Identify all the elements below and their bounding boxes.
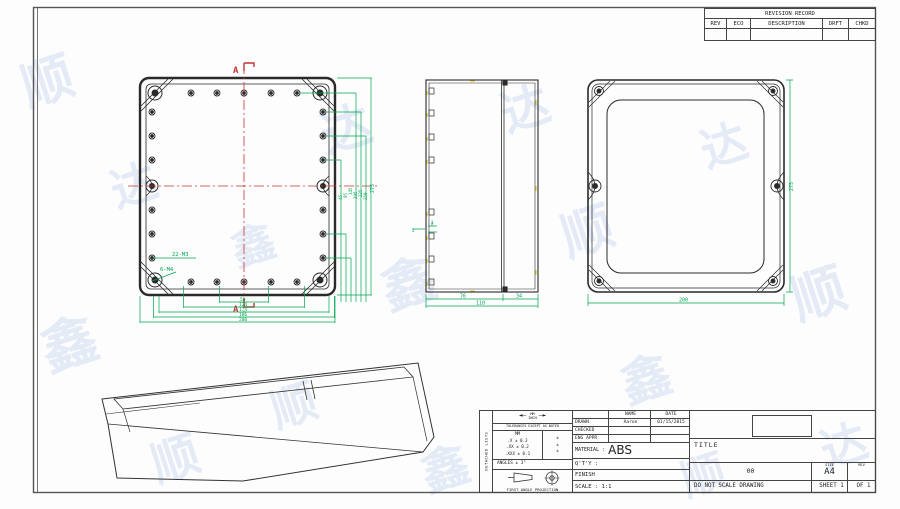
size-value: A4	[824, 468, 835, 478]
drawing-number: 00	[690, 463, 812, 480]
corner-holes-label: 6-M4	[160, 267, 174, 273]
svg-text:76: 76	[460, 294, 466, 300]
sheet-of: OF 1	[848, 481, 875, 492]
col-rev: REV	[705, 19, 727, 28]
side-strip-label: DETACHED LISTS	[484, 432, 488, 471]
col-chkd: CHKD	[849, 19, 875, 28]
back-dimensions	[588, 80, 793, 306]
col-drft: DRFT	[823, 19, 849, 28]
material-label: MATERIAL :	[575, 448, 605, 454]
cone-symbol-icon	[506, 471, 536, 484]
tol-row-2: .XX ± 0.2	[506, 445, 529, 450]
stamp-row	[690, 411, 875, 439]
front-view: A A 50 124	[128, 63, 380, 323]
tol-row-1: .X ± 0.3	[507, 439, 527, 444]
tolerance-block: ◄— MM INCH —► TOLERANCES EXCEPT AS NOTED…	[493, 411, 573, 492]
revision-table-title: REVISION RECORD	[704, 8, 876, 19]
checked-row: CHECKED	[573, 427, 689, 435]
projection-target-icon	[544, 470, 560, 486]
approvals-header: NAME DATE	[573, 411, 689, 419]
svg-text:250: 250	[363, 192, 368, 200]
approvals-block: NAME DATE DRAWN Aaron 01/15/2015 CHECKED…	[573, 411, 690, 492]
svg-text:200: 200	[239, 317, 247, 323]
rev-cell: REV	[848, 463, 875, 480]
svg-text:275: 275	[370, 184, 376, 193]
back-view: 200 275	[588, 80, 795, 306]
section-mark-top: A	[233, 66, 239, 76]
side-view: 76 34 110 3 2	[412, 80, 538, 308]
stamp-box	[752, 415, 812, 437]
back-dim-texts: 200 275	[679, 182, 795, 304]
eng-appr-row: ENG APPR	[573, 435, 689, 443]
arrow-left-icon: ◄—	[519, 413, 526, 420]
isometric-view	[102, 363, 434, 481]
tolerance-table: MM .X ± 0.3 .XX ± 0.2 .XXX ± 0.1 ± ± ±	[493, 431, 572, 460]
title-block: DETACHED LISTS ◄— MM INCH —► TOLERANCES …	[479, 410, 876, 493]
tolerance-note: TOLERANCES EXCEPT AS NOTED	[493, 424, 572, 432]
thread-holes-label: 22-M3	[172, 252, 189, 258]
number-row: 00 SIZE A4 REV	[690, 463, 875, 481]
angles-tolerance: ANGLES ± 3°	[493, 460, 572, 470]
revision-table-empty-row	[704, 29, 876, 41]
arrow-right-icon: —►	[539, 413, 546, 420]
sheet-number: SHEET 1	[812, 481, 848, 492]
units-inch: INCH	[528, 417, 537, 421]
bottom-row: DO NOT SCALE DRAWING SHEET 1 OF 1	[690, 481, 875, 492]
title-label: TITLE	[690, 439, 875, 463]
revision-table-header: REV ECO DESCRIPTION DRFT CHKD	[704, 19, 876, 29]
projection-cell: FIRST ANGLE PROJECTION	[493, 470, 572, 492]
title-block-side-strip: DETACHED LISTS	[480, 411, 493, 492]
material-value: ABS	[608, 444, 632, 457]
svg-text:3: 3	[431, 220, 434, 225]
units-row: ◄— MM INCH —►	[493, 411, 572, 424]
centerlines	[128, 63, 380, 312]
col-description: DESCRIPTION	[751, 19, 823, 28]
side-ticks	[427, 81, 536, 291]
col-eco: ECO	[727, 19, 751, 28]
drawn-row: DRAWN Aaron 01/15/2015	[573, 419, 689, 427]
tol-row-3: .XXX ± 0.1	[505, 452, 530, 457]
scale-row: SCALE : 1:1	[573, 481, 689, 492]
revision-table: REVISION RECORD REV ECO DESCRIPTION DRFT…	[704, 8, 876, 41]
svg-text:34: 34	[516, 294, 522, 300]
size-cell: SIZE A4	[812, 463, 848, 480]
qty-row: Q'T'Y :	[573, 459, 689, 470]
title-area-block: TITLE 00 SIZE A4 REV DO NOT SCALE DRAWIN…	[690, 411, 875, 492]
do-not-scale-note: DO NOT SCALE DRAWING	[690, 481, 812, 492]
projection-label: FIRST ANGLE PROJECTION	[507, 488, 559, 492]
tol-col-header: MM	[515, 432, 520, 437]
svg-text:275: 275	[789, 182, 795, 191]
material-row: MATERIAL : ABS	[573, 443, 689, 460]
svg-text:110: 110	[476, 301, 485, 307]
finish-row: FINISH	[573, 470, 689, 481]
svg-text:200: 200	[679, 298, 688, 304]
side-dim-texts: 76 34 110 3 2	[412, 220, 522, 307]
